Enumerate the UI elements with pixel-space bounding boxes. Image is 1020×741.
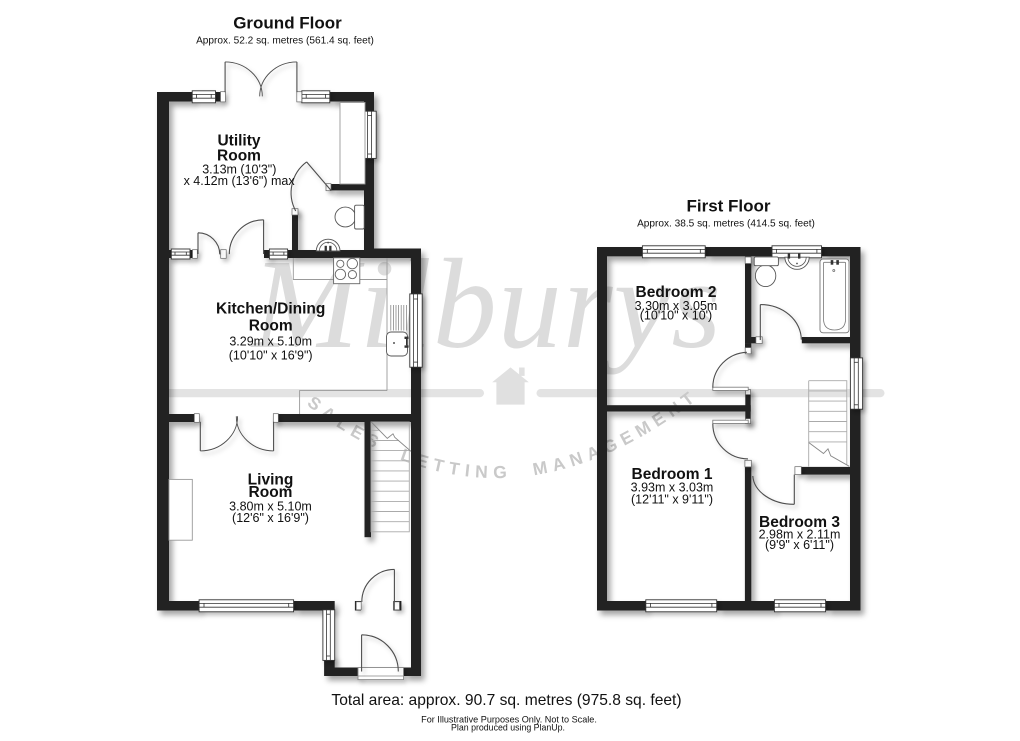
svg-text:(12'11" x 9'11"): (12'11" x 9'11") bbox=[631, 492, 713, 506]
svg-text:Approx. 38.5 sq. metres (414.5: Approx. 38.5 sq. metres (414.5 sq. feet) bbox=[637, 219, 815, 230]
svg-text:3.29m x 5.10m: 3.29m x 5.10m bbox=[229, 335, 312, 349]
svg-text:Room: Room bbox=[249, 484, 293, 501]
svg-text:First Floor: First Floor bbox=[686, 197, 770, 216]
svg-text:x 4.12m (13'6") max: x 4.12m (13'6") max bbox=[184, 174, 296, 188]
svg-text:(10'10" x 16'9"): (10'10" x 16'9") bbox=[229, 349, 313, 363]
svg-text:Plan produced using PlanUp.: Plan produced using PlanUp. bbox=[451, 722, 565, 732]
svg-text:Room: Room bbox=[249, 318, 293, 335]
svg-text:Total area: approx. 90.7 sq. m: Total area: approx. 90.7 sq. metres (975… bbox=[331, 692, 681, 709]
svg-text:Approx. 52.2 sq. metres (561.4: Approx. 52.2 sq. metres (561.4 sq. feet) bbox=[196, 35, 374, 46]
svg-text:(12'6" x 16'9"): (12'6" x 16'9") bbox=[232, 511, 309, 525]
svg-text:(9'9" x 6'11"): (9'9" x 6'11") bbox=[765, 538, 834, 552]
svg-text:Ground Floor: Ground Floor bbox=[233, 14, 342, 33]
svg-text:Kitchen/Dining: Kitchen/Dining bbox=[216, 301, 325, 318]
svg-text:(10'10" x 10'): (10'10" x 10') bbox=[640, 309, 712, 323]
